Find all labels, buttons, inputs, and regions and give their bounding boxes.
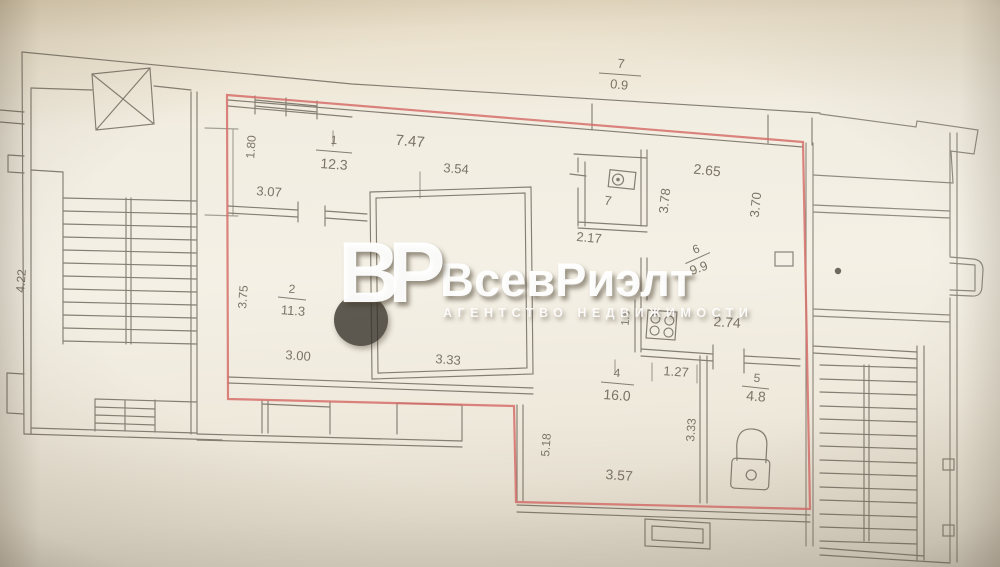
building-top-right-corner <box>813 114 978 183</box>
floor-plan-drawing: 7.47 7 0.9 1 12.3 3.54 3.07 1.80 2.65 3.… <box>0 0 1000 567</box>
kitchen-vent <box>775 252 793 266</box>
room1-fraction-line <box>316 150 352 153</box>
room1-number: 1 <box>330 133 338 147</box>
room5-area: 4.8 <box>746 387 767 404</box>
balcony-number: 7 <box>617 56 626 72</box>
dim-518: 5.18 <box>538 432 554 457</box>
sink-icon <box>608 170 636 190</box>
building-top-wall <box>22 52 820 113</box>
dim-333a: 3.33 <box>435 351 461 368</box>
balcony-area: 0.9 <box>609 76 629 93</box>
dim-354: 3.54 <box>443 160 469 177</box>
stairs-treads <box>63 198 196 344</box>
toilet-icon <box>731 428 772 490</box>
dim-265: 2.65 <box>693 161 722 180</box>
room6-number: 6 <box>690 241 701 257</box>
dim-307: 3.07 <box>256 183 282 200</box>
room4-number: 4 <box>613 366 621 380</box>
room7wc-number: 7 <box>603 193 612 209</box>
floor-plan-photo: 7.47 7 0.9 1 12.3 3.54 3.07 1.80 2.65 3.… <box>0 0 1000 567</box>
room3-walls <box>370 187 533 379</box>
dim-370: 3.70 <box>747 191 765 218</box>
room2-number: 2 <box>288 282 296 296</box>
dim-217: 2.17 <box>576 229 603 246</box>
dim-16: 1.6 <box>619 310 632 326</box>
walls-layer <box>0 52 983 563</box>
dim-127: 1.27 <box>663 363 689 380</box>
dim-375: 3.75 <box>235 284 251 309</box>
room1-area: 12.3 <box>320 155 349 173</box>
dim-top-width: 7.47 <box>395 132 426 151</box>
wc7-walls <box>570 150 647 232</box>
stairwell-right <box>813 346 954 563</box>
room4-fraction-line <box>601 382 634 385</box>
dim-180: 1.80 <box>243 134 259 159</box>
dim-300: 3.00 <box>285 347 311 364</box>
porch <box>645 519 710 549</box>
room2-area: 11.3 <box>280 302 305 319</box>
entrance-steps <box>95 399 155 432</box>
vestibule <box>197 401 462 447</box>
elevator-icon <box>92 68 154 130</box>
apartment-outline <box>227 95 810 509</box>
bay-window <box>950 257 983 296</box>
room5-number: 5 <box>753 371 761 385</box>
balcony-fraction-line <box>599 73 641 76</box>
dim-422: 4.22 <box>13 268 29 293</box>
dim-378: 3.78 <box>656 187 674 214</box>
stove-icon <box>646 310 677 340</box>
dim-357: 3.57 <box>605 466 634 484</box>
plan-dot <box>835 268 841 274</box>
room6-label: 6 9.9 <box>680 238 717 278</box>
dim-274: 2.74 <box>713 313 742 331</box>
room2-fraction-line <box>278 297 306 300</box>
neighbor-right <box>806 114 983 562</box>
dim-333b: 3.33 <box>683 417 699 442</box>
room4-area: 16.0 <box>603 386 632 404</box>
stairwell-left <box>0 52 222 440</box>
